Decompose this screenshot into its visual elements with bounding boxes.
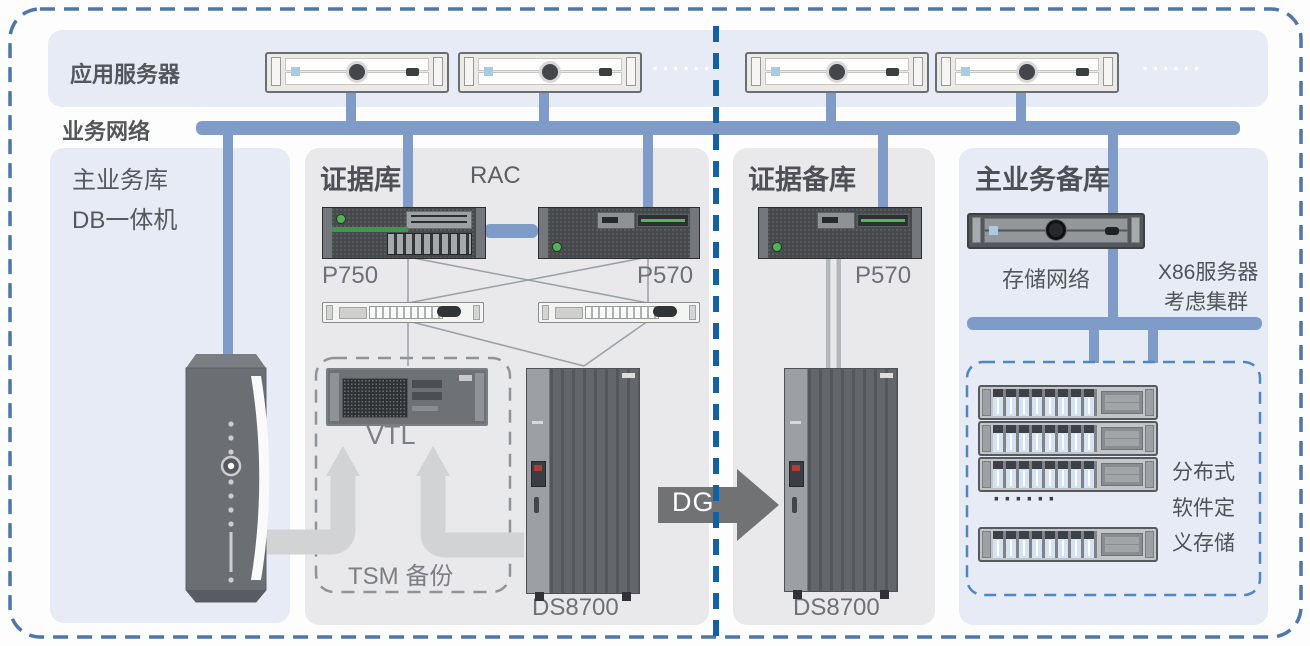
- drive-slots-icon: [993, 389, 1097, 416]
- storage-network-bar: [967, 317, 1262, 330]
- ibm-logo-icon: [622, 373, 635, 378]
- control-panel-icon: [531, 461, 546, 487]
- dg-label: DG: [672, 487, 715, 518]
- ds8700-label-2: DS8700: [793, 594, 880, 622]
- app-server-icon-4: [935, 52, 1119, 93]
- evidence-backup-title: 证据备库: [748, 158, 856, 197]
- app-server-icon-2: [458, 52, 642, 93]
- storage-node-icon-1: [978, 385, 1158, 420]
- network-connector-p570-backup: [878, 134, 888, 208]
- ds8700-storage-icon-1: [526, 368, 640, 594]
- network-connector-tower: [223, 134, 233, 355]
- main-db-label-line1: 主业务库: [72, 160, 168, 195]
- knob-icon: [349, 64, 365, 80]
- p570-backup-server-icon: [758, 207, 922, 259]
- p750-label: P750: [322, 262, 378, 290]
- sds-label-line2: 软件定: [1172, 492, 1235, 522]
- p570-backup-label: P570: [855, 262, 911, 290]
- main-db-label-line2: DB一体机: [72, 200, 177, 235]
- evidence-db-title: 证据库: [320, 158, 401, 197]
- storage-bar-stub-1: [1089, 329, 1099, 363]
- drive-bay-icon: [387, 233, 472, 255]
- storage-network-label: 存储网络: [1002, 262, 1090, 294]
- tsm-backup-label: TSM 备份: [348, 556, 453, 591]
- business-network-label: 业务网络: [62, 114, 150, 146]
- network-connector-app1: [346, 89, 356, 122]
- storage-node-icon-2: [978, 421, 1158, 456]
- san-switch-icon-1: [322, 302, 484, 323]
- network-connector-app2: [539, 89, 549, 122]
- network-connector-p750: [403, 134, 413, 208]
- storage-network-host-icon: [967, 213, 1145, 249]
- p750-server-icon: [322, 207, 486, 259]
- storage-node-icon-4: [978, 527, 1158, 562]
- vtl-label: VTL: [366, 420, 416, 451]
- disaster-recovery-architecture-diagram: 应用服务器 ······ ······ 业务网络 主业务库 DB一体机: [0, 0, 1310, 646]
- ibm-logo-icon: [880, 373, 893, 378]
- app-server-icon-1: [265, 52, 449, 93]
- storage-bar-stub-2: [1148, 329, 1158, 363]
- control-panel-icon: [789, 461, 804, 487]
- ellipsis-dots-right: ······: [1142, 56, 1204, 82]
- x86-label-line1: X86服务器: [1158, 256, 1258, 286]
- vtl-device-icon: [326, 368, 488, 426]
- optical-drive-icon: [857, 214, 909, 227]
- power-led-icon: [291, 67, 300, 76]
- sds-label-line1: 分布式: [1172, 456, 1235, 486]
- optical-drive-icon: [637, 214, 689, 227]
- ds8700-label-1: DS8700: [532, 594, 619, 622]
- storage-ellipsis-dots: ······: [993, 486, 1059, 514]
- vent-grille-icon: [342, 378, 408, 418]
- ellipsis-dots-left: ······: [652, 56, 714, 82]
- sds-label-line3: 义存储: [1172, 527, 1235, 557]
- main-backup-title: 主业务备库: [975, 158, 1110, 197]
- x86-label-line2: 考虑集群: [1164, 286, 1248, 316]
- app-server-label: 应用服务器: [70, 57, 180, 89]
- network-connector-app4: [1016, 89, 1026, 122]
- san-switch-icon-2: [538, 302, 700, 323]
- rac-label: RAC: [470, 162, 521, 190]
- power-led-icon: [989, 226, 998, 235]
- ds8700-storage-icon-2: [784, 368, 898, 592]
- business-network-bar: [196, 121, 1240, 135]
- power-button-icon: [772, 242, 782, 252]
- network-connector-p570: [643, 134, 653, 208]
- rac-link-bar: [484, 224, 538, 238]
- network-connector-app3: [826, 89, 836, 122]
- knob-icon: [1049, 223, 1063, 237]
- p570-server-icon: [538, 207, 700, 259]
- power-button-icon: [336, 214, 346, 224]
- power-button-icon: [552, 242, 562, 252]
- app-server-icon-3: [745, 52, 929, 93]
- p570-label: P570: [637, 262, 693, 290]
